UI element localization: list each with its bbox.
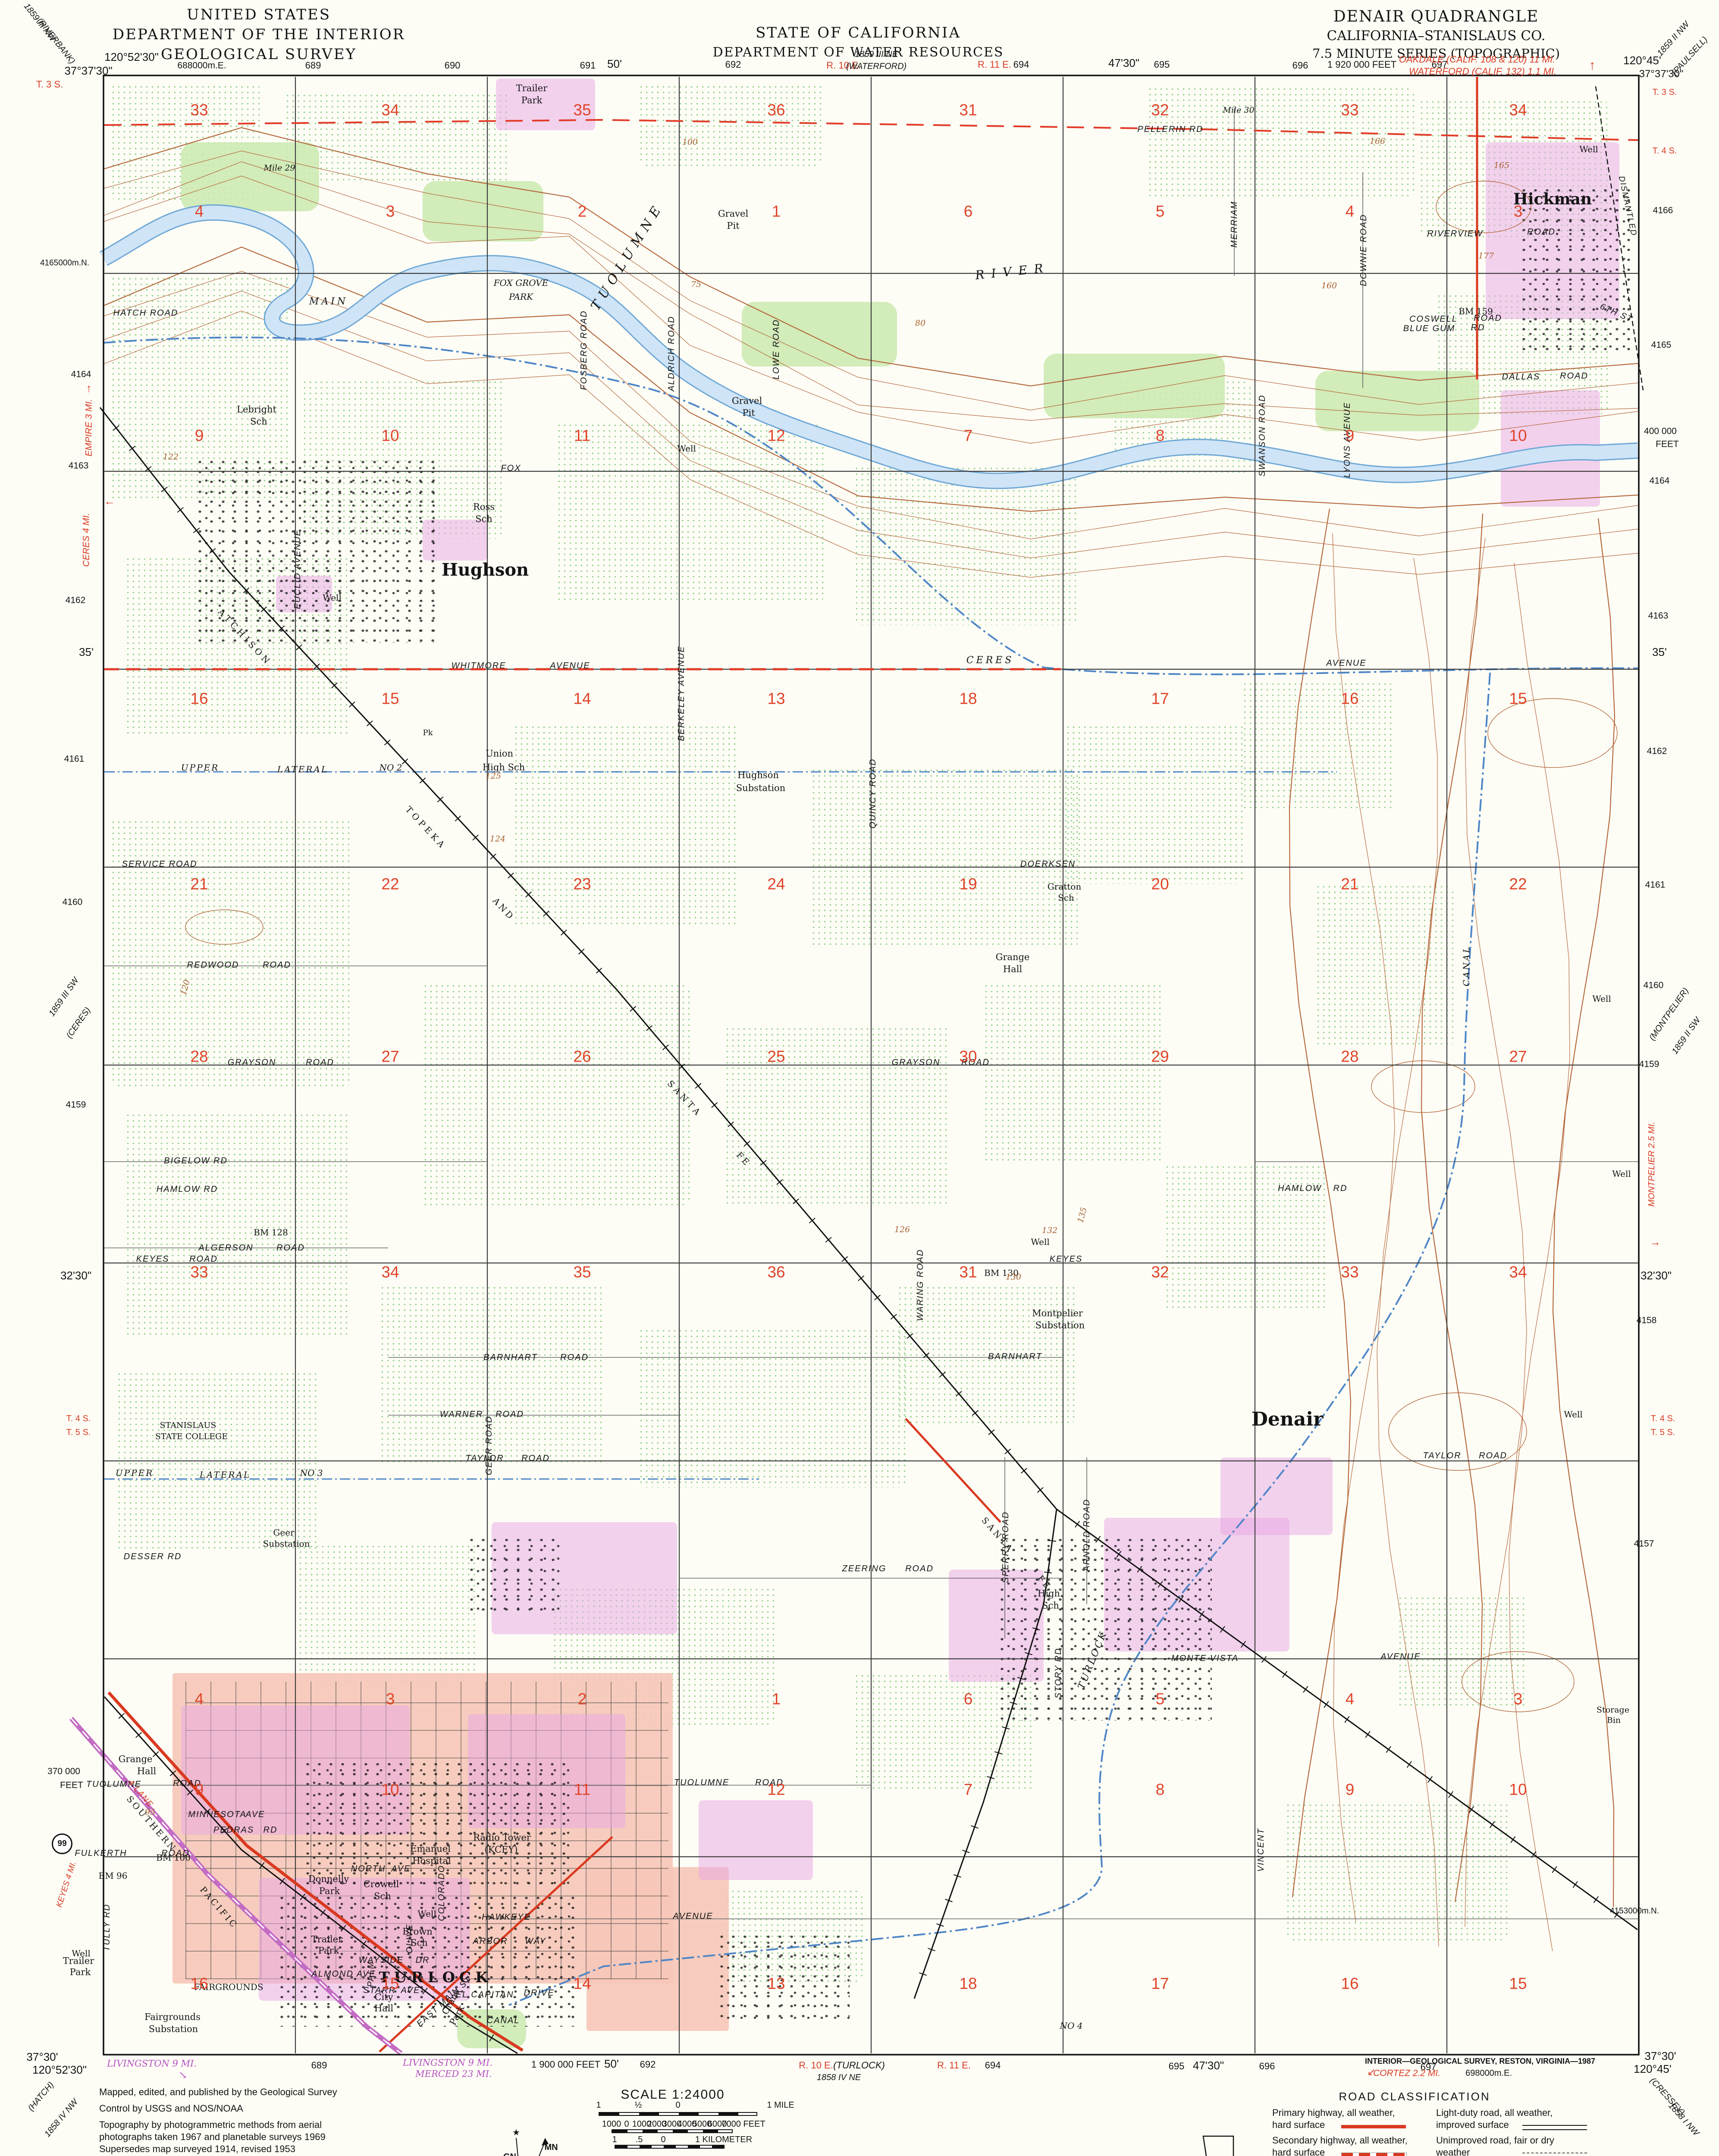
map-label: 692 [725, 60, 741, 69]
map-label: 1 920 000 FEET [1327, 60, 1396, 69]
road-class-primary-l1: Primary highway, all weather, [1272, 2108, 1395, 2118]
map-label: 37°37'30" [64, 65, 112, 76]
light-duty-road-symbol [1522, 2125, 1587, 2130]
map-label: 50' [604, 2058, 619, 2069]
map-label: 32'30" [1641, 1270, 1672, 1281]
map-label: 35' [79, 646, 94, 658]
map-label: MERCED 23 MI. [415, 2070, 492, 2079]
map-label: 4164 [71, 370, 91, 379]
map-label: 698000m.E. [1465, 2069, 1512, 2078]
map-label: FEET [1656, 440, 1679, 449]
map-label: 120°52'30" [32, 2064, 87, 2075]
map-label: 4161 [64, 755, 85, 764]
scale-bar-miles [599, 2112, 757, 2116]
map-label: R. 11 E. [937, 2061, 971, 2070]
map-label: LIVINGSTON 9 MI. [107, 2059, 197, 2068]
map-label: 50' [607, 58, 622, 69]
map-label: 4162 [66, 596, 86, 605]
map-label: R. 10 E. [799, 2061, 833, 2070]
scale-tick-label: 0 [624, 2120, 629, 2128]
scale-tick-label: 1 [612, 2135, 617, 2144]
credit-line: Supersedes map surveyed 1914, revised 19… [99, 2143, 522, 2155]
credit-line: Topography by photogrammetric methods fr… [99, 2119, 522, 2131]
map-label: 692 [640, 2060, 656, 2069]
map-label: (TURLOCK) [833, 2061, 885, 2070]
map-label: 4159 [1639, 1060, 1659, 1069]
credit-line: Control by USGS and NOS/NOAA [99, 2103, 522, 2115]
scale-bar-feet [612, 2129, 733, 2133]
map-label: 4163 [69, 461, 89, 470]
map-label: Well [72, 1949, 91, 1958]
topo-map-sheet: { "header": { "left": ["UNITED STATES", … [0, 0, 1719, 2156]
map-label: 4165 [1651, 341, 1672, 350]
map-label: 35' [1652, 646, 1667, 658]
map-label: 4162 [1647, 747, 1667, 756]
map-label: T. 4 S. [1651, 1414, 1675, 1423]
primary-highway-symbol [1341, 2125, 1406, 2128]
scale-tick-label: 0 [675, 2101, 680, 2109]
road-class-primary-l2: hard surface [1272, 2120, 1325, 2130]
map-label: T. 5 S. [1651, 1428, 1675, 1437]
map-label: 691 [580, 61, 596, 70]
map-label: T. 4 S. [1653, 147, 1677, 155]
map-label: 47'30" [1193, 2060, 1224, 2071]
map-label: WATERFORD (CALIF. 132) 1.1 MI. [1409, 67, 1556, 76]
map-label: 120°45' [1623, 55, 1661, 66]
scale-tick-label: 1 MILE [767, 2101, 794, 2109]
road-class-unimproved-l2: weather [1436, 2148, 1470, 2156]
scale-tick-label: 1 KILOMETER [695, 2135, 752, 2144]
map-label: LIVINGSTON 9 MI. [403, 2059, 492, 2068]
map-label: T. 4 S. [66, 1414, 91, 1423]
road-class-secondary-l1: Secondary highway, all weather, [1272, 2136, 1408, 2145]
map-label: → [1650, 1236, 1661, 1247]
map-label: 694 [1013, 60, 1029, 69]
scale-tick-label: 1 [596, 2101, 601, 2109]
map-label: 4158 [1637, 1316, 1657, 1325]
map-label: 689 [311, 2061, 327, 2070]
map-label: 400 000 [1644, 427, 1677, 436]
scale-text: SCALE 1:24000 [621, 2088, 725, 2101]
secondary-highway-symbol [1341, 2153, 1407, 2156]
map-label: 690 [445, 61, 461, 70]
map-label: (WATERFORD) [846, 62, 907, 71]
map-label: CERES 4 MI. [82, 513, 91, 567]
map-label: EMPIRE 3 MI. [85, 399, 94, 456]
map-label: 4164 [1650, 476, 1670, 486]
map-label: T. 3 S. [1653, 88, 1677, 97]
map-label: OAKDALE (CALIF. 108 & 120) 11 MI. [1399, 55, 1555, 64]
map-label: 370 000 [47, 1767, 80, 1776]
road-class-light-l1: Light-duty road, all weather, [1436, 2108, 1553, 2118]
map-canvas[interactable] [104, 75, 1639, 2055]
map-label: ↙ [1367, 2067, 1376, 2078]
map-label: MONTPELIER 2.5 MI. [1647, 1122, 1656, 1207]
scale-tick-label: 0 [661, 2135, 665, 2144]
map-label: R. 11 E. [978, 60, 1011, 69]
map-label: 37°30' [1644, 2050, 1676, 2062]
map-label: ↘ [179, 2070, 187, 2080]
map-label: 1859 III NE [855, 50, 898, 59]
map-label: 695 [1154, 60, 1170, 69]
credits-block: Mapped, edited, and published by the Geo… [99, 2082, 522, 2156]
road-class-unimproved-l1: Unimproved road, fair or dry [1436, 2136, 1554, 2145]
credit-line: Mapped, edited, and published by the Geo… [99, 2086, 522, 2098]
map-label: ↑ [86, 382, 92, 394]
road-class-light-l2: improved surface [1436, 2120, 1509, 2130]
map-label: INTERIOR—GEOLOGICAL SURVEY, RESTON, VIRG… [1365, 2057, 1595, 2065]
road-class-secondary-l2: hard surface [1272, 2148, 1325, 2156]
map-label: T. 3 S. [36, 80, 63, 89]
map-label: 4165000m.N. [40, 259, 89, 267]
map-label: Park [70, 1968, 91, 1977]
map-label: FEET [60, 1781, 83, 1790]
scale-tick-label: .5 [636, 2135, 643, 2144]
map-label: 4161 [1645, 881, 1666, 890]
map-label: 1 900 000 FEET [531, 2060, 600, 2069]
scale-bar-km [615, 2145, 725, 2149]
map-label: 696 [1292, 61, 1308, 70]
map-label: 4159 [66, 1100, 86, 1109]
unimproved-road-symbol [1522, 2153, 1587, 2156]
map-label: 4160 [1644, 981, 1664, 990]
map-label: CORTEZ 2.2 MI. [1373, 2069, 1440, 2078]
map-label: 37°30' [26, 2051, 58, 2062]
map-label: 695 [1169, 2062, 1185, 2071]
map-label: 47'30" [1108, 57, 1139, 69]
map-label: T. 5 S. [66, 1428, 91, 1437]
scale-tick-label: ½ [635, 2101, 642, 2109]
map-label: 120°52'30" [104, 51, 159, 63]
map-label: 688000m.E. [177, 61, 226, 70]
california-outline [1203, 2136, 1254, 2156]
map-label: 4160 [63, 898, 83, 907]
map-label: 694 [985, 2061, 1001, 2070]
map-label: 1858 IV NE [817, 2073, 861, 2082]
scale-tick-label: 1000 [602, 2120, 621, 2128]
map-label: 696 [1259, 2062, 1275, 2071]
map-label: ↑ [1589, 59, 1596, 72]
map-label: 4163 [1648, 611, 1669, 620]
map-label: 120°45' [1634, 2063, 1672, 2075]
route-99-shield: 99 [52, 1833, 72, 1854]
map-label: 4166 [1653, 206, 1673, 215]
map-label: MN [544, 2143, 558, 2152]
map-label: 32'30" [60, 1270, 91, 1281]
road-class-title: ROAD CLASSIFICATION [1339, 2091, 1490, 2102]
credit-line: photographs taken 1967 and planetable su… [99, 2131, 522, 2143]
map-label: 689 [305, 61, 321, 70]
scale-tick-label: 7000 FEET [721, 2120, 765, 2128]
